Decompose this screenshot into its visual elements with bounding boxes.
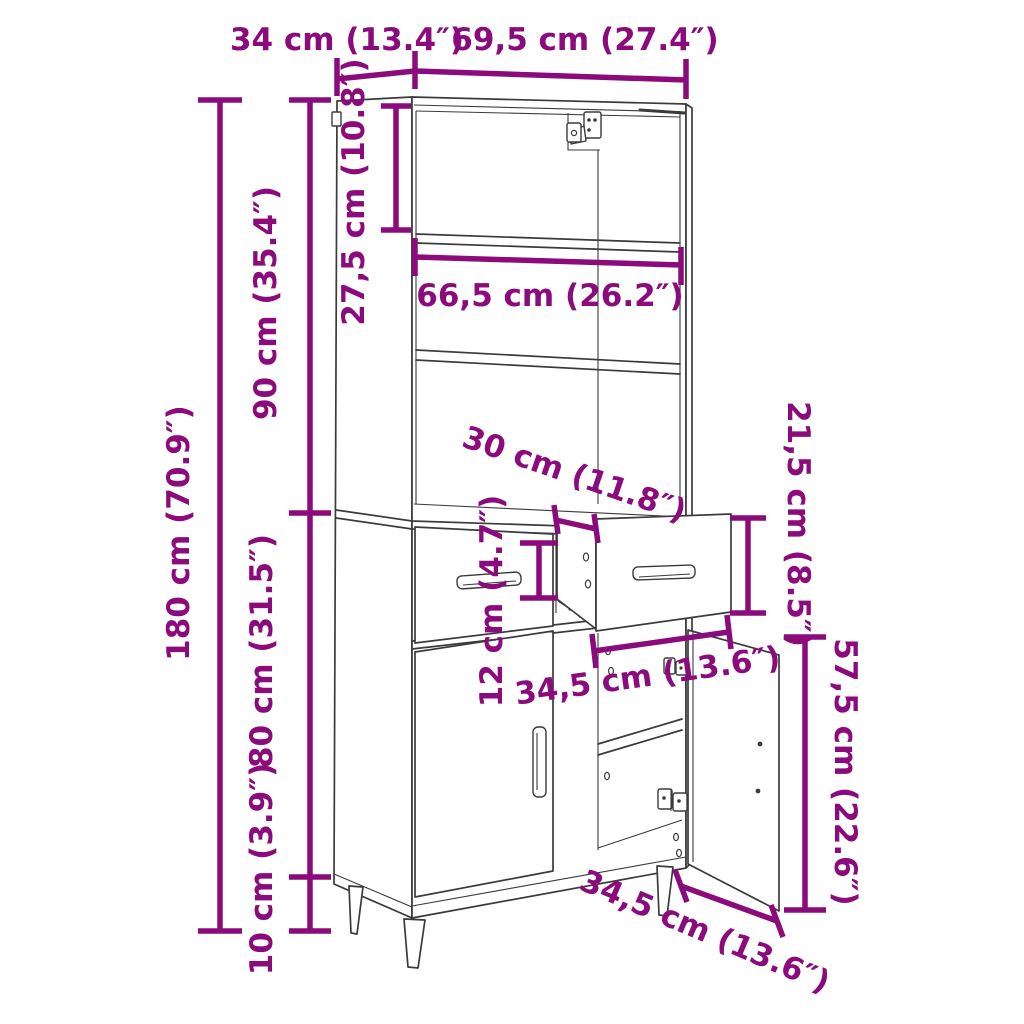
drawer-side-hole [585,580,590,588]
door-handle-hole [758,742,763,747]
door-handle-hole [756,789,761,794]
dim-label-door-width: 34,5 cm (13.6″) [575,863,835,1001]
door-hinge-lower [658,789,687,811]
dim-label-leg-height: 10 cm (3.9″) [244,763,280,976]
hinge-screw-dot [662,796,666,800]
dim-line [289,513,331,877]
dim-leg-height: 10 cm (3.9″) [244,763,331,976]
left-door-handle [533,727,546,797]
dim-total-height: 180 cm (70.9″) [161,100,242,931]
hinge-bracket [584,112,601,138]
open-drawer-handle [633,565,695,580]
leg-front-left [404,919,425,968]
dim-label-drawer-height-outer: 21,5 cm (8.5″) [780,401,816,647]
dim-door-height: 57,5 cm (22.6″) [784,637,863,910]
shelf-pin-hole [677,849,682,856]
shelf-pin-hole [674,833,679,840]
dim-upper-height: 90 cm (35.4″) [248,100,331,513]
dim-label-top-compartment-height: 27,5 cm (10.8″) [336,58,372,325]
dimension-diagram: 34 cm (13.4″) 69,5 cm (27.4″) 27,5 cm (1… [0,0,1024,1024]
dim-line [198,100,242,931]
dim-line [289,877,331,931]
dim-label-depth-top: 34 cm (13.4″) [230,22,464,58]
dim-drawer-height-outer: 21,5 cm (8.5″) [730,401,816,647]
hinge-screw-dot [587,118,591,122]
dim-label-upper-height: 90 cm (35.4″) [248,186,284,420]
shelf-pin-hole [605,772,610,779]
dim-label-width-top: 69,5 cm (27.4″) [451,22,718,58]
hinge-cam-hole [571,130,576,135]
open-drawer [557,514,731,631]
dim-door-width: 34,5 cm (13.6″) [575,863,835,1001]
drawer-side-hole [583,553,588,561]
dim-label-door-height: 57,5 cm (22.6″) [827,638,863,905]
dim-label-inner-width: 66,5 cm (26.2″) [416,278,683,314]
dim-label-lower-height: 80 cm (31.5″) [244,534,280,768]
dim-label-total-height: 180 cm (70.9″) [161,405,197,661]
hinge-screw-dot [593,118,597,122]
dim-line [415,59,686,99]
dim-line [784,637,826,910]
dim-line [730,518,766,613]
diagram-canvas: 34 cm (13.4″) 69,5 cm (27.4″) 27,5 cm (1… [0,0,1024,1024]
hinge-screw-dot [587,128,591,132]
hinge-screw-dot [677,799,681,803]
leg-back-left [349,886,363,934]
dim-line [289,100,331,513]
dim-width-top: 69,5 cm (27.4″) [415,22,719,99]
dim-label-drawer-front-height: 12 cm (4.7″) [474,495,510,708]
